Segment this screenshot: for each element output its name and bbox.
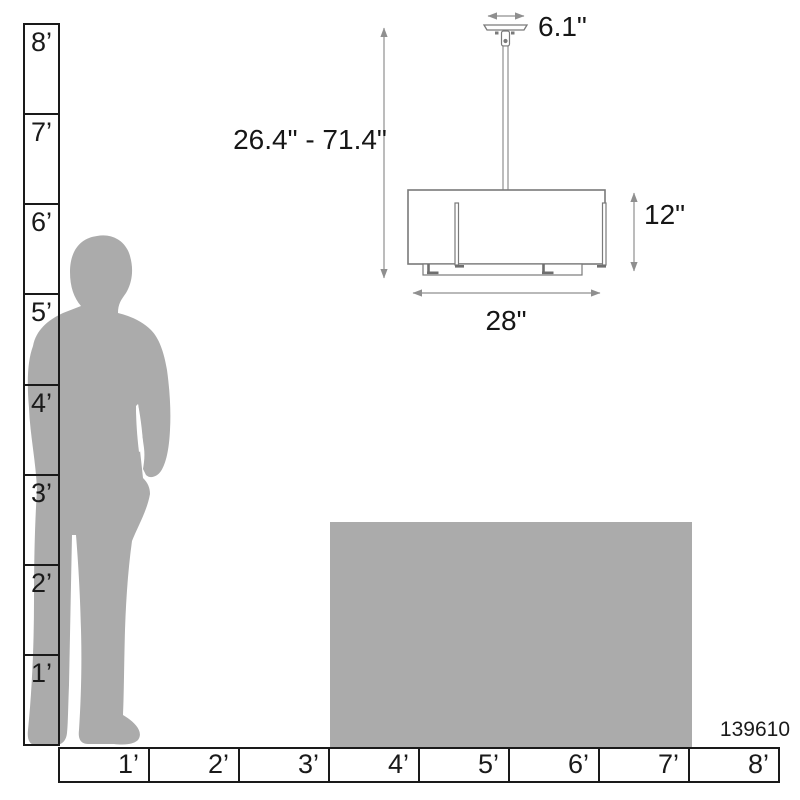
horizontal-ruler-cell: 1’ <box>60 749 150 781</box>
ruler-label: 1’ <box>118 749 139 779</box>
ruler-label: 5’ <box>478 749 499 779</box>
vertical-ruler: 8’ 7’ 6’ 5’ 4’ 3’ 2’ 1’ <box>23 23 60 746</box>
ruler-label: 8’ <box>31 27 52 57</box>
vertical-ruler-cell: 7’ <box>25 115 58 205</box>
horizontal-ruler-cell: 5’ <box>420 749 510 781</box>
horizontal-ruler-cell: 2’ <box>150 749 240 781</box>
ruler-label: 2’ <box>31 568 52 598</box>
ruler-label: 3’ <box>31 478 52 508</box>
vertical-ruler-cell: 8’ <box>25 25 58 115</box>
horizontal-ruler-cell: 3’ <box>240 749 330 781</box>
horizontal-ruler: 1’ 2’ 3’ 4’ 5’ 6’ 7’ 8’ <box>58 747 780 783</box>
ruler-label: 4’ <box>388 749 409 779</box>
product-number: 139610 <box>720 719 790 740</box>
ruler-label: 5’ <box>31 297 52 327</box>
ruler-label: 7’ <box>658 749 679 779</box>
horizontal-ruler-cell: 7’ <box>600 749 690 781</box>
ruler-label: 7’ <box>31 117 52 147</box>
vertical-ruler-cell: 3’ <box>25 476 58 566</box>
ruler-label: 6’ <box>568 749 589 779</box>
ruler-label: 2’ <box>208 749 229 779</box>
horizontal-ruler-cell: 6’ <box>510 749 600 781</box>
ruler-label: 8’ <box>748 749 769 779</box>
ruler-label: 4’ <box>31 388 52 418</box>
horizontal-ruler-cell: 8’ <box>690 749 778 781</box>
vertical-ruler-cell: 1’ <box>25 656 58 744</box>
product-size-chart: 8’ 7’ 6’ 5’ 4’ 3’ 2’ 1’ 1’ 2’ 3’ 4’ 5’ 6… <box>0 0 800 800</box>
vertical-ruler-cell: 5’ <box>25 295 58 385</box>
table-scale-block <box>330 522 692 747</box>
vertical-ruler-cell: 2’ <box>25 566 58 656</box>
ruler-label: 3’ <box>298 749 319 779</box>
ruler-label: 6’ <box>31 207 52 237</box>
vertical-ruler-cell: 4’ <box>25 386 58 476</box>
ruler-label: 1’ <box>31 658 52 688</box>
horizontal-ruler-cell: 4’ <box>330 749 420 781</box>
vertical-ruler-cell: 6’ <box>25 205 58 295</box>
